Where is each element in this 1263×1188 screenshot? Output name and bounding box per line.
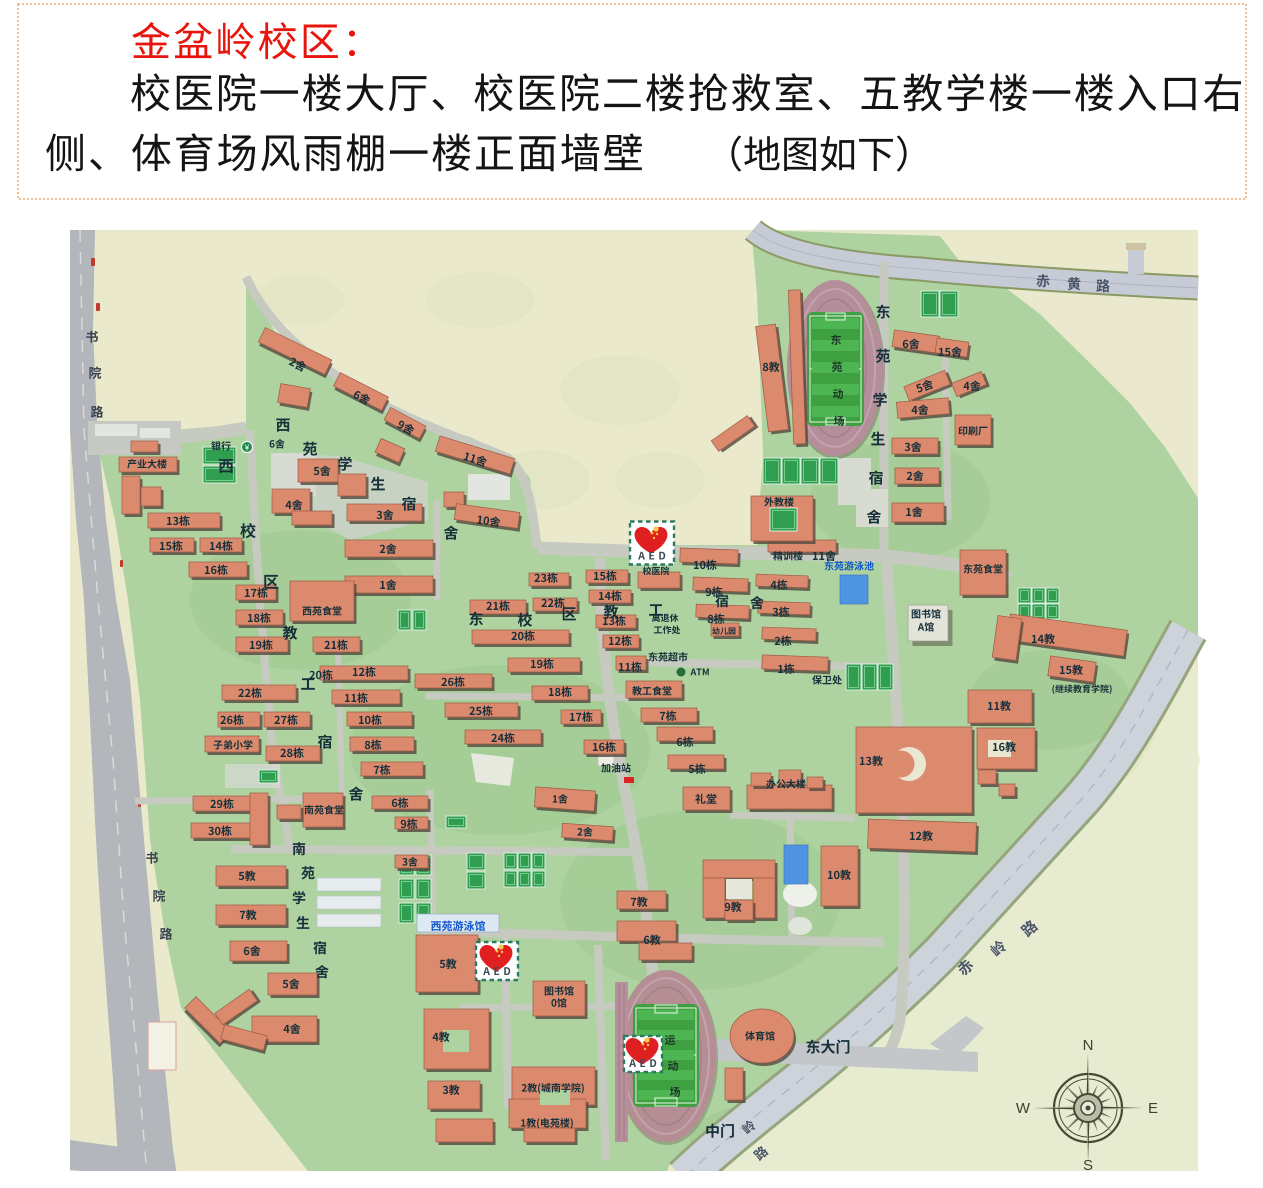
svg-text:¥: ¥: [244, 444, 250, 453]
